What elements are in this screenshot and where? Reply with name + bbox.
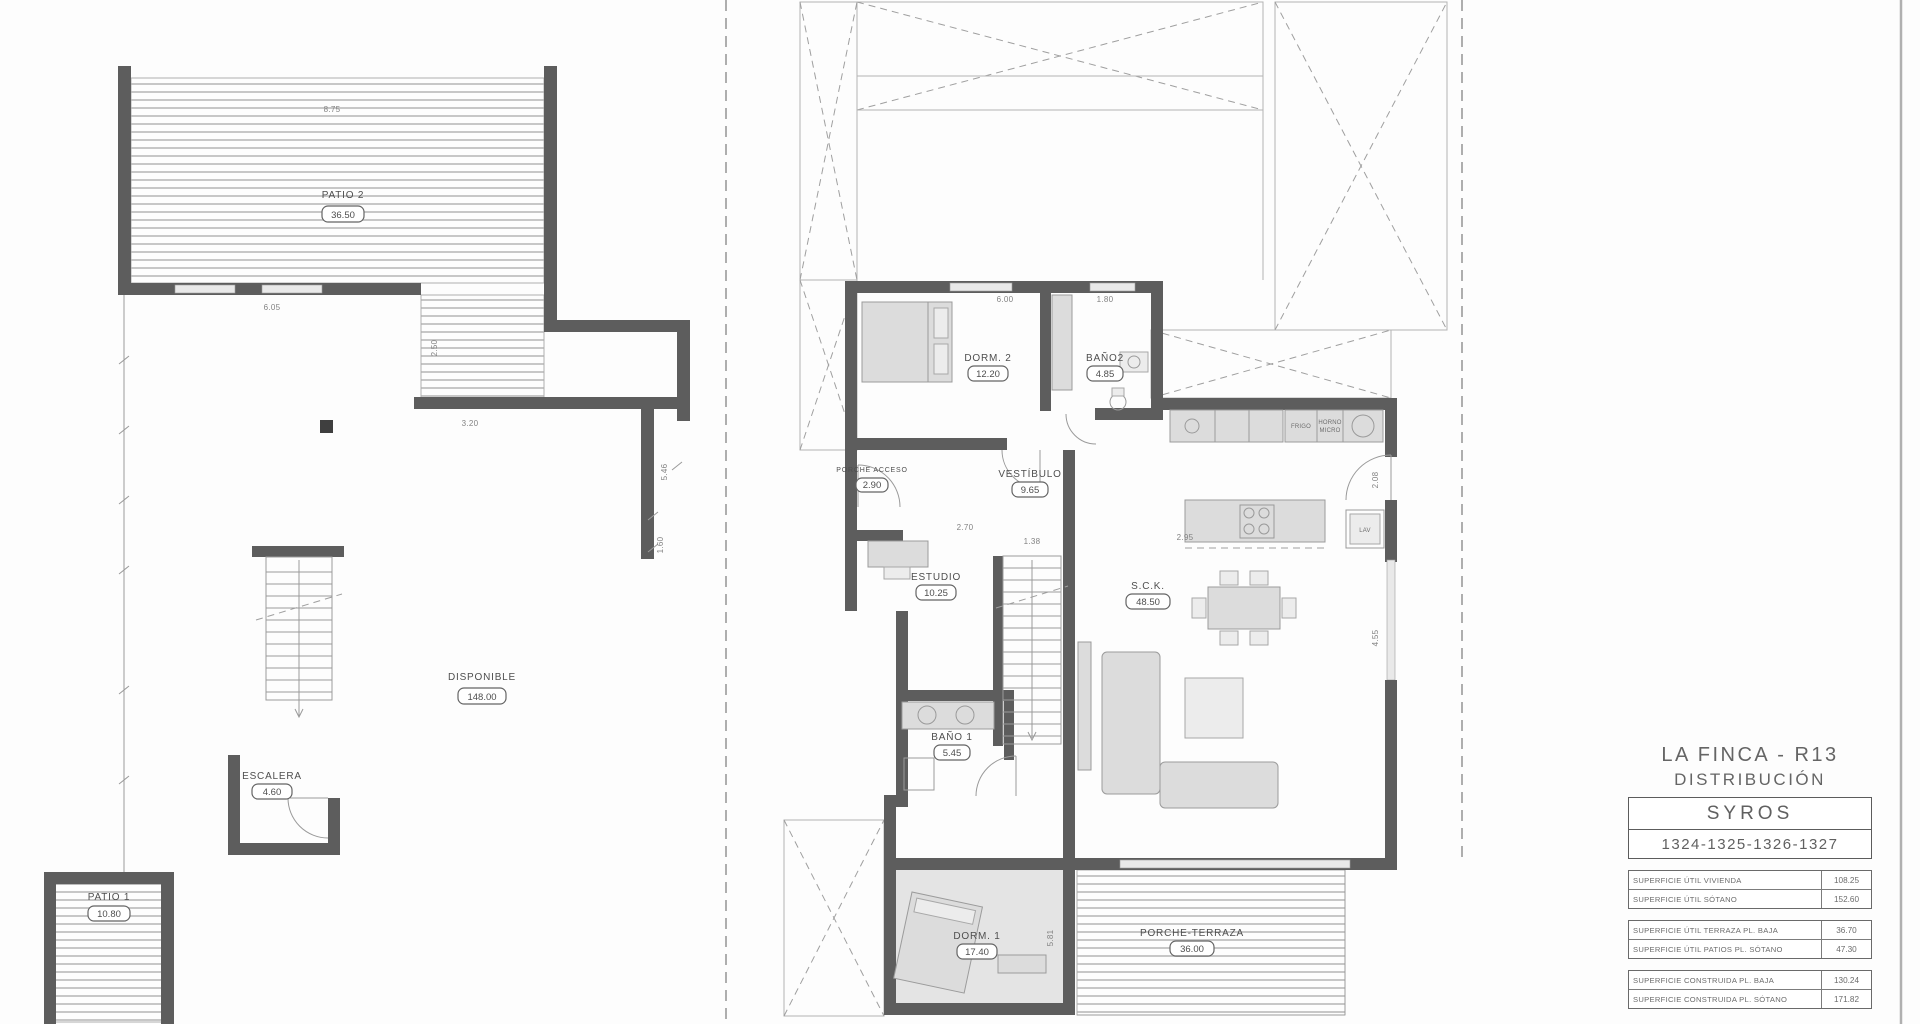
area-label: SUPERFICIE CONSTRUIDA PL. SÓTANO	[1629, 990, 1821, 1008]
area-value: 171.82	[1821, 990, 1871, 1008]
patio1-hatch	[52, 884, 162, 1022]
wall	[884, 801, 896, 1015]
room-area-patio-1: 10.80	[97, 909, 121, 920]
dimension-label: 6.05	[264, 303, 281, 312]
table-row: SUPERFICIE CONSTRUIDA PL. SÓTANO 171.82	[1629, 989, 1871, 1008]
table-row: SUPERFICIE ÚTIL SÓTANO 152.60	[1629, 889, 1871, 908]
area-label: SUPERFICIE ÚTIL PATIOS PL. SÓTANO	[1629, 940, 1821, 958]
dimension-label: 5.46	[660, 463, 669, 480]
dimension-label: 3.20	[462, 419, 479, 428]
double-sink-icon	[902, 702, 994, 729]
dimension-label: 6.00	[997, 295, 1014, 304]
wall	[1063, 450, 1075, 858]
area-label: SUPERFICIE CONSTRUIDA PL. BAJA	[1629, 971, 1821, 989]
table-row: SUPERFICIE ÚTIL PATIOS PL. SÓTANO 47.30	[1629, 939, 1871, 958]
room-area-porche-acceso: 2.90	[863, 480, 882, 491]
table-row: SUPERFICIE CONSTRUIDA PL. BAJA 130.24	[1629, 971, 1871, 989]
window	[175, 285, 235, 293]
window	[1120, 860, 1350, 868]
area-table-util: SUPERFICIE ÚTIL VIVIENDA 108.25 SUPERFIC…	[1628, 870, 1872, 909]
table-row: SUPERFICIE ÚTIL TERRAZA PL. BAJA 36.70	[1629, 921, 1871, 939]
model-name: SYROS	[1628, 797, 1872, 830]
area-label: SUPERFICIE ÚTIL SÓTANO	[1629, 890, 1821, 908]
window	[950, 283, 1012, 291]
dimension-label: 2.08	[1371, 471, 1380, 488]
column-marker	[320, 420, 333, 433]
room-label-disponible: DISPONIBLE	[448, 672, 516, 683]
wardrobe-icon	[998, 955, 1046, 973]
room-label-estudio: ESTUDIO	[911, 572, 961, 583]
room-area-bano1: 5.45	[943, 748, 962, 759]
ground-floor-plan: FRIGO HORNO MICRO LAV	[784, 2, 1447, 1016]
room-label-patio-2: PATIO 2	[322, 190, 364, 201]
area-value: 36.70	[1821, 921, 1871, 939]
room-label-dorm2: DORM. 2	[964, 353, 1011, 364]
kitchen-counter: FRIGO HORNO MICRO	[1170, 410, 1383, 442]
area-table-terraza-patios: SUPERFICIE ÚTIL TERRAZA PL. BAJA 36.70 S…	[1628, 920, 1872, 959]
dimension-label: 5.81	[1046, 929, 1055, 946]
drawing-title: DISTRIBUCIÓN	[1628, 770, 1872, 790]
door-arc	[1346, 455, 1391, 500]
stairs-icon	[228, 546, 344, 855]
wall	[1063, 870, 1075, 1015]
room-area-dorm1: 17.40	[965, 947, 989, 958]
room-area-sck: 48.50	[1136, 597, 1160, 608]
room-area-dorm2: 12.20	[976, 369, 1000, 380]
room-label-dorm1: DORM. 1	[953, 931, 1000, 942]
room-label-escalera: ESCALERA	[242, 771, 302, 782]
wall	[1385, 680, 1397, 870]
floor-plan-sheet: PATIO 2 36.50 DISPONIBLE 148.00 ESCALERA…	[0, 0, 1920, 1024]
room-label-bano2: BAÑO2	[1086, 351, 1124, 364]
appliance-label-frigo: FRIGO	[1291, 424, 1311, 430]
kitchen-island	[1185, 500, 1325, 548]
wardrobe-icon	[1052, 295, 1072, 390]
title-block: LA FINCA - R13 DISTRIBUCIÓN SYROS 1324-1…	[1628, 744, 1872, 1009]
basement-plan: PATIO 2 36.50 DISPONIBLE 148.00 ESCALERA…	[44, 66, 690, 1024]
room-label-sck: S.C.K.	[1131, 581, 1165, 592]
wall	[1163, 398, 1397, 410]
sofa-icon	[1102, 652, 1278, 808]
room-label-porche-acceso: PORCHE ACCESO	[836, 467, 907, 474]
washer-closet: LAV	[1346, 510, 1384, 548]
area-label: SUPERFICIE ÚTIL VIVIENDA	[1629, 871, 1821, 889]
shower-icon	[904, 758, 934, 790]
wall	[845, 281, 857, 451]
door-arc	[976, 756, 1016, 796]
dimension-label: 8.75	[324, 105, 341, 114]
wall	[544, 320, 690, 332]
patio2-hatch-lower	[421, 295, 544, 399]
toilet-icon	[1110, 388, 1126, 410]
wall	[1151, 281, 1163, 420]
wall	[857, 438, 1007, 450]
wall	[1095, 408, 1163, 420]
appliance-label-lav: LAV	[1359, 528, 1371, 534]
dimension-label: 4.55	[1371, 629, 1380, 646]
room-area-estudio: 10.25	[924, 588, 948, 599]
wall	[1385, 398, 1397, 457]
table-row: SUPERFICIE ÚTIL VIVIENDA 108.25	[1629, 871, 1871, 889]
wall	[1385, 500, 1397, 562]
wall	[544, 66, 557, 332]
door-arc	[1066, 414, 1096, 444]
dimension-label: 1.38	[1024, 537, 1041, 546]
bed-icon	[862, 302, 952, 382]
room-area-bano2: 4.85	[1096, 369, 1115, 380]
dimension-label: 1.80	[1097, 295, 1114, 304]
unit-numbers: 1324-1325-1326-1327	[1628, 830, 1872, 859]
door-arc	[288, 798, 328, 838]
area-value: 152.60	[1821, 890, 1871, 908]
window	[1090, 283, 1135, 291]
area-table-construida: SUPERFICIE CONSTRUIDA PL. BAJA 130.24 SU…	[1628, 970, 1872, 1009]
appliance-label-micro: MICRO	[1320, 428, 1341, 434]
wall	[845, 530, 903, 541]
tv-unit-icon	[1078, 642, 1091, 770]
area-value: 47.30	[1821, 940, 1871, 958]
dining-table-icon	[1192, 571, 1296, 645]
wall	[884, 1003, 1075, 1015]
dimension-label: 2.50	[430, 339, 439, 356]
area-label: SUPERFICIE ÚTIL TERRAZA PL. BAJA	[1629, 921, 1821, 939]
dimension-label: 2.95	[1177, 533, 1194, 542]
room-area-porche-terraza: 36.00	[1180, 944, 1204, 955]
wall	[118, 66, 131, 294]
area-value: 130.24	[1821, 971, 1871, 989]
room-label-bano1: BAÑO 1	[931, 730, 972, 743]
wall	[1040, 293, 1051, 411]
window	[262, 285, 322, 293]
room-area-escalera: 4.60	[263, 787, 282, 798]
room-label-vestibulo: VESTÍBULO	[998, 467, 1061, 480]
room-area-disponible: 148.00	[467, 692, 496, 703]
room-label-patio-1: PATIO 1	[88, 892, 130, 903]
sink-icon	[1120, 352, 1148, 372]
appliance-label-horno: HORNO	[1318, 420, 1341, 426]
window	[1387, 560, 1395, 680]
wall	[641, 409, 654, 559]
wall	[414, 397, 690, 409]
dimension-label: 1.60	[656, 536, 665, 553]
project-title: LA FINCA - R13	[1628, 744, 1872, 767]
room-label-porche-terraza: PORCHE-TERRAZA	[1140, 928, 1244, 939]
room-area-patio-2: 36.50	[331, 210, 355, 221]
room-area-vestibulo: 9.65	[1021, 485, 1040, 496]
area-value: 108.25	[1821, 871, 1871, 889]
dimension-label: 2.70	[957, 523, 974, 532]
